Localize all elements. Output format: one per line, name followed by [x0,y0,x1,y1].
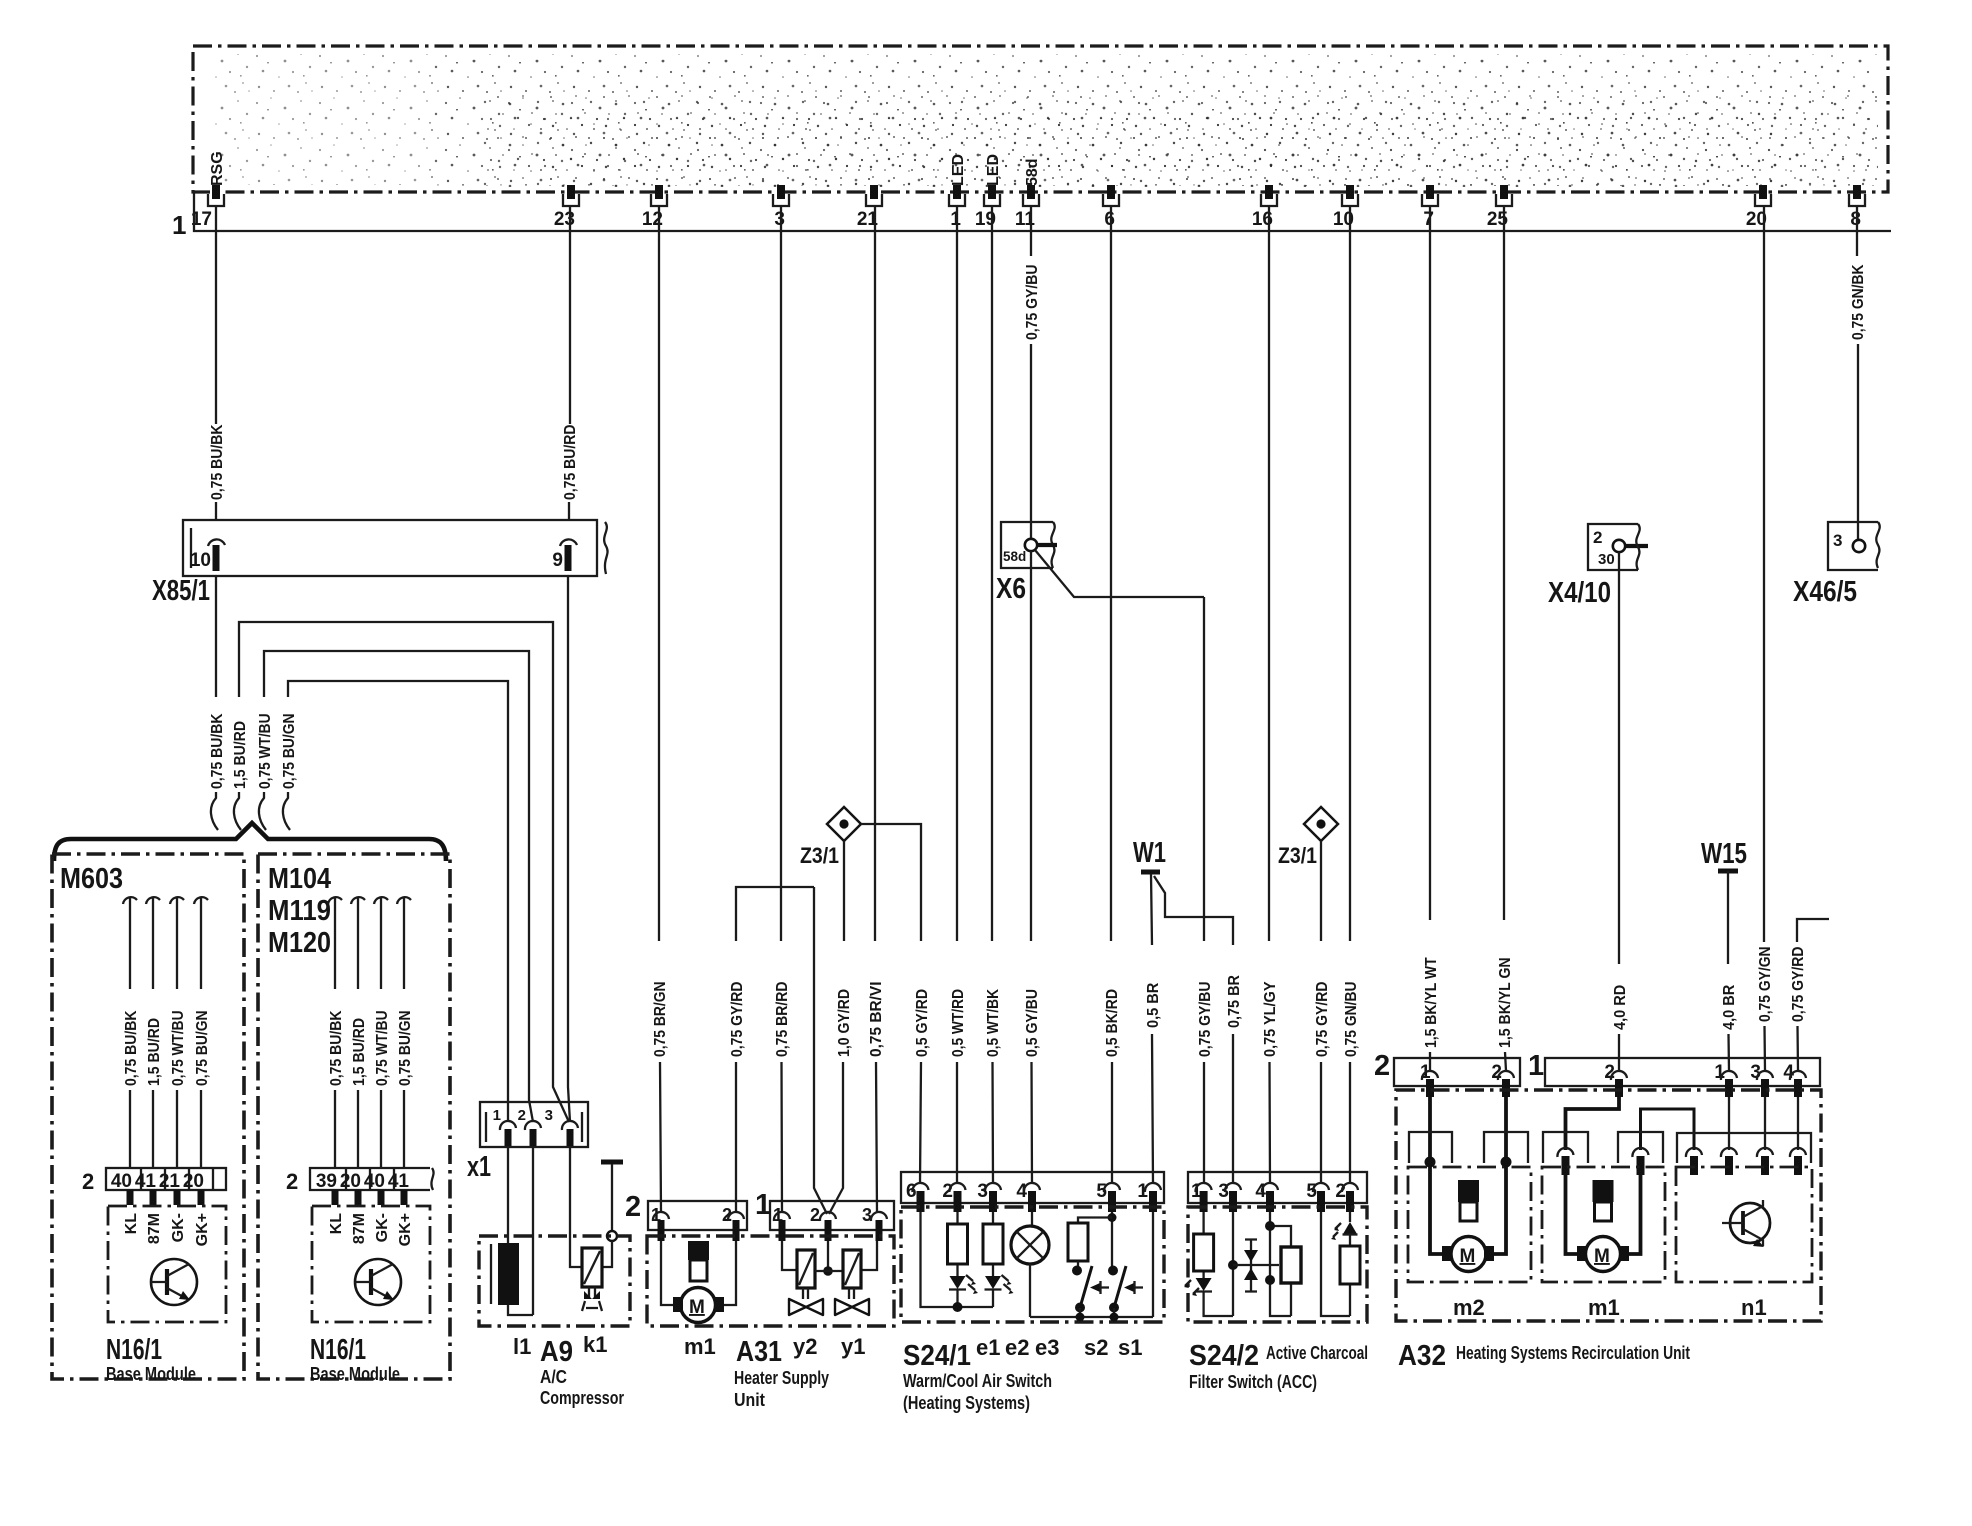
svg-text:0,75 BU/GN: 0,75 BU/GN [397,1011,414,1087]
svg-text:X85/1: X85/1 [152,575,210,607]
svg-text:5: 5 [1096,1181,1107,1202]
svg-text:3: 3 [774,209,785,230]
svg-text:Z3/1: Z3/1 [1278,843,1317,868]
svg-text:20: 20 [183,1171,204,1192]
svg-text:A9: A9 [540,1336,573,1368]
svg-text:n1: n1 [1741,1295,1767,1320]
svg-text:2: 2 [82,1169,94,1194]
svg-text:1,5 BK/YL WT: 1,5 BK/YL WT [1423,957,1440,1048]
svg-text:Base Module: Base Module [106,1363,196,1384]
svg-text:0,5 BR: 0,5 BR [1145,982,1162,1028]
svg-text:A/C: A/C [540,1366,567,1387]
svg-text:m1: m1 [1588,1295,1620,1320]
svg-text:Heater Supply: Heater Supply [734,1367,830,1388]
svg-text:1: 1 [1528,1050,1544,1082]
svg-text:4,0 RD: 4,0 RD [1612,985,1629,1030]
svg-text:RSG: RSG [209,151,226,186]
svg-text:3: 3 [977,1181,988,1202]
svg-text:4,0 BR: 4,0 BR [1721,984,1738,1030]
svg-text:Compressor: Compressor [540,1387,624,1408]
svg-text:y1: y1 [841,1334,865,1359]
svg-text:GK+: GK+ [397,1213,414,1246]
svg-text:1,5 BU/RD: 1,5 BU/RD [146,1018,163,1086]
svg-text:0,75 BU/BK: 0,75 BU/BK [209,713,226,789]
svg-text:Heating Systems Recirculation: Heating Systems Recirculation Unit [1456,1342,1690,1363]
svg-text:0,75 BU/BK: 0,75 BU/BK [209,424,226,500]
svg-text:0,75 BR/GN: 0,75 BR/GN [652,982,669,1058]
svg-text:LED: LED [950,154,967,186]
svg-text:1: 1 [755,1189,771,1221]
svg-text:3: 3 [1833,531,1842,550]
svg-text:M: M [689,1297,705,1318]
svg-text:l1: l1 [513,1334,531,1359]
svg-text:2: 2 [1593,528,1602,547]
svg-text:A31: A31 [736,1336,782,1368]
svg-text:41: 41 [388,1171,410,1192]
svg-text:0,75 WT/BU: 0,75 WT/BU [257,714,274,790]
svg-text:0,75 BR/RD: 0,75 BR/RD [774,982,791,1058]
svg-text:1: 1 [1137,1181,1148,1202]
svg-text:0,75 BU/BK: 0,75 BU/BK [328,1010,345,1086]
svg-text:25: 25 [1487,209,1509,230]
svg-text:m2: m2 [1453,1295,1485,1320]
svg-text:2: 2 [1374,1050,1390,1082]
svg-text:s1: s1 [1118,1335,1142,1360]
svg-text:0,75 BR: 0,75 BR [1226,975,1243,1028]
svg-text:N16/1: N16/1 [106,1334,162,1366]
svg-text:m1: m1 [684,1334,716,1359]
svg-text:1: 1 [493,1107,501,1124]
svg-text:0,75 GY/BU: 0,75 GY/BU [1024,265,1041,341]
svg-text:0,75 GY/RD: 0,75 GY/RD [1314,982,1331,1058]
svg-text:1,5 BK/YL GN: 1,5 BK/YL GN [1497,957,1514,1048]
svg-text:8: 8 [1850,209,1861,230]
svg-text:2: 2 [518,1107,526,1124]
svg-text:(Heating Systems): (Heating Systems) [903,1392,1030,1413]
svg-text:X6: X6 [996,573,1026,605]
svg-text:0,75 WT/BU: 0,75 WT/BU [170,1011,187,1087]
svg-text:W15: W15 [1701,838,1747,870]
svg-text:0,75 WT/BU: 0,75 WT/BU [374,1011,391,1087]
svg-text:X46/5: X46/5 [1793,576,1857,608]
svg-text:M603: M603 [60,863,123,895]
svg-text:0,75 YL/GY: 0,75 YL/GY [1262,981,1279,1057]
svg-text:6: 6 [1104,209,1115,230]
svg-text:1,0 GY/RD: 1,0 GY/RD [836,989,853,1057]
svg-text:y2: y2 [793,1334,817,1359]
svg-text:1: 1 [172,210,186,240]
svg-text:3: 3 [545,1107,553,1124]
svg-text:k1: k1 [583,1332,607,1357]
svg-text:Z3/1: Z3/1 [800,843,839,868]
svg-text:X4/10: X4/10 [1548,577,1611,609]
svg-text:Active Charcoal: Active Charcoal [1266,1342,1368,1363]
svg-text:x1: x1 [467,1151,491,1183]
svg-text:s2: s2 [1084,1335,1108,1360]
svg-text:0,5 WT/RD: 0,5 WT/RD [950,989,967,1057]
svg-text:0,75 BU/GN: 0,75 BU/GN [281,714,298,790]
svg-text:11: 11 [1015,209,1036,230]
svg-text:0,75 GY/RD: 0,75 GY/RD [1790,947,1807,1023]
svg-text:0,75 GN/BK: 0,75 GN/BK [1850,264,1867,340]
svg-text:2: 2 [625,1191,641,1223]
svg-text:10: 10 [190,550,211,571]
svg-text:0,75 GY/BU: 0,75 GY/BU [1197,982,1214,1058]
svg-text:e3: e3 [1035,1335,1059,1360]
svg-text:Unit: Unit [734,1389,765,1410]
svg-text:0,75 BU/GN: 0,75 BU/GN [194,1011,211,1087]
svg-text:KL: KL [123,1213,140,1235]
svg-text:87M: 87M [351,1213,368,1244]
svg-text:LED: LED [985,154,1002,186]
svg-text:21: 21 [159,1171,181,1192]
svg-text:GK-: GK- [374,1213,391,1242]
svg-text:A32: A32 [1398,1340,1446,1372]
svg-text:0,75 GY/RD: 0,75 GY/RD [729,982,746,1058]
svg-text:87M: 87M [146,1213,163,1244]
svg-text:0,5 BK/RD: 0,5 BK/RD [1104,989,1121,1057]
svg-text:4: 4 [1016,1181,1027,1202]
svg-text:M: M [1594,1246,1610,1267]
svg-text:2: 2 [286,1169,298,1194]
svg-text:58d: 58d [1024,158,1041,186]
svg-text:0,5 GY/RD: 0,5 GY/RD [914,989,931,1057]
svg-text:0,75 BU/BK: 0,75 BU/BK [123,1010,140,1086]
svg-text:M120: M120 [268,927,331,959]
svg-text:e2: e2 [1005,1335,1029,1360]
svg-text:7: 7 [1423,209,1434,230]
svg-text:M119: M119 [268,895,331,927]
svg-text:2: 2 [810,1205,820,1225]
svg-text:0,75 GY/GN: 0,75 GY/GN [1757,947,1774,1023]
svg-text:30: 30 [1598,551,1615,568]
svg-text:9: 9 [552,550,563,571]
svg-text:Warm/Cool Air Switch: Warm/Cool Air Switch [903,1370,1052,1391]
svg-text:0,75 BR/VI: 0,75 BR/VI [868,982,885,1058]
svg-text:0,5 WT/BK: 0,5 WT/BK [985,989,1002,1057]
svg-text:e1: e1 [976,1335,1000,1360]
svg-text:0,5 GY/BU: 0,5 GY/BU [1024,989,1041,1057]
svg-text:S24/2: S24/2 [1189,1340,1259,1372]
svg-text:Base Module: Base Module [310,1363,400,1384]
svg-text:W1: W1 [1133,837,1166,869]
svg-text:KL: KL [328,1213,345,1235]
svg-text:0,75 BU/RD: 0,75 BU/RD [562,425,579,501]
svg-text:M: M [1460,1246,1476,1267]
svg-text:40: 40 [111,1171,132,1192]
svg-text:S24/1: S24/1 [903,1340,971,1372]
svg-text:1,5 BU/RD: 1,5 BU/RD [232,721,249,789]
svg-text:Filter Switch (ACC): Filter Switch (ACC) [1189,1371,1317,1392]
svg-text:3: 3 [862,1205,872,1225]
svg-text:39: 39 [316,1171,337,1192]
svg-text:58d: 58d [1003,549,1026,564]
svg-text:23: 23 [554,209,575,230]
svg-text:20: 20 [340,1171,361,1192]
svg-text:0,75 GN/BU: 0,75 GN/BU [1343,982,1360,1058]
svg-text:GK+: GK+ [194,1213,211,1246]
svg-text:GK-: GK- [170,1213,187,1242]
svg-text:40: 40 [364,1171,385,1192]
svg-text:1,5 BU/RD: 1,5 BU/RD [351,1018,368,1086]
svg-text:N16/1: N16/1 [310,1334,366,1366]
svg-text:M104: M104 [268,863,331,895]
svg-text:41: 41 [135,1171,157,1192]
